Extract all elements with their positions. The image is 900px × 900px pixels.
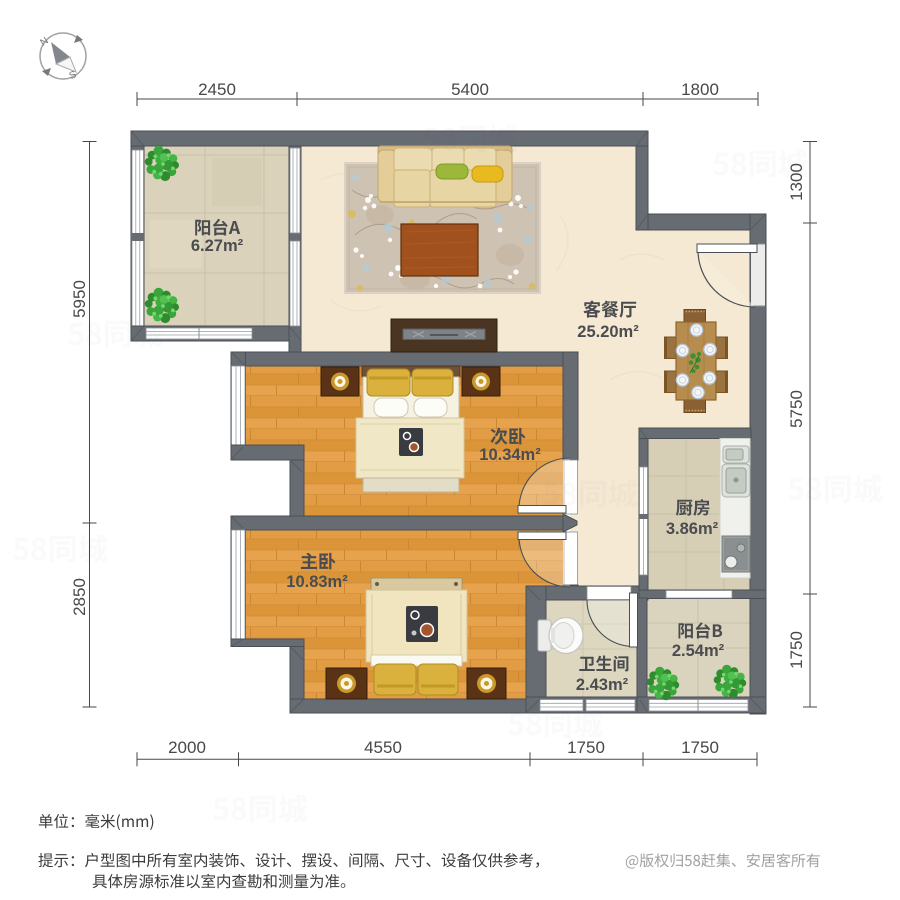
svg-text:5400: 5400 [451, 80, 489, 99]
svg-text:25.20m²: 25.20m² [577, 323, 639, 341]
svg-text:4550: 4550 [364, 738, 402, 757]
svg-text:1750: 1750 [681, 738, 719, 757]
svg-text:2000: 2000 [168, 738, 206, 757]
svg-text:2.43m²: 2.43m² [576, 676, 629, 694]
svg-text:1750: 1750 [567, 738, 605, 757]
svg-text:5950: 5950 [70, 280, 89, 318]
svg-text:10.34m²: 10.34m² [479, 446, 541, 464]
svg-text:2450: 2450 [198, 80, 236, 99]
svg-text:2850: 2850 [70, 578, 89, 616]
svg-text:3.86m²: 3.86m² [666, 520, 719, 538]
svg-text:1800: 1800 [681, 80, 719, 99]
svg-text:5750: 5750 [787, 390, 806, 428]
svg-text:10.83m²: 10.83m² [286, 573, 348, 591]
svg-text:6.27m²: 6.27m² [191, 237, 244, 255]
svg-text:1750: 1750 [787, 631, 806, 669]
svg-text:S: S [68, 69, 79, 82]
svg-text:2.54m²: 2.54m² [672, 642, 725, 660]
